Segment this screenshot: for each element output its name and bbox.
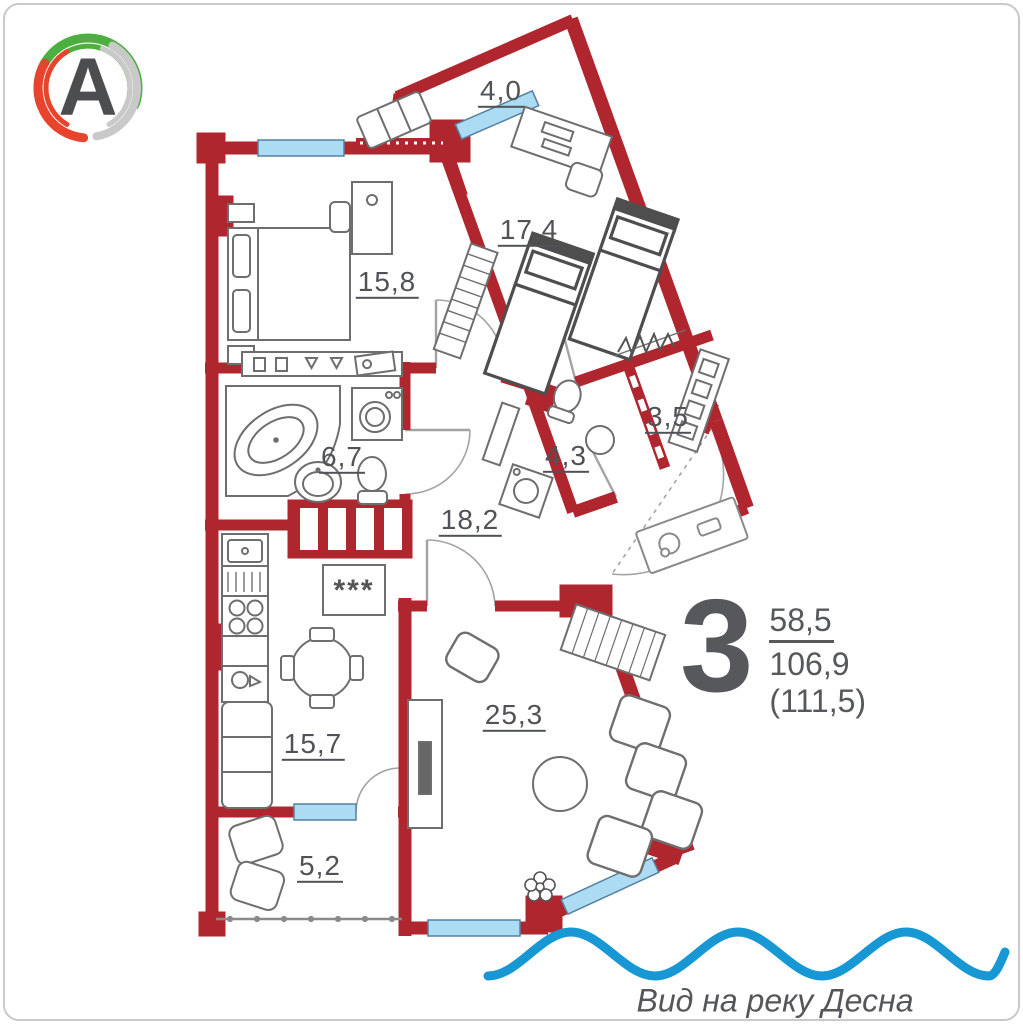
- bathroom-shelf: [242, 351, 402, 376]
- apartment-stats: 3 58,5 106,9 (111,5): [680, 585, 866, 722]
- ottoman: [533, 757, 587, 811]
- plant: [525, 872, 555, 901]
- living-armchair: [443, 629, 502, 685]
- logo-letter: A: [58, 41, 117, 135]
- desk-bedroom2: [511, 107, 612, 177]
- entrance-bench: [635, 497, 748, 574]
- kitchen-sofa: [222, 702, 272, 808]
- double-bed: [228, 228, 350, 340]
- room-label-hallway: 18,2: [439, 505, 502, 537]
- window-bedroom1: [258, 140, 344, 156]
- total-area: 106,9: [769, 647, 866, 682]
- room-label-wardrobe: 3,5: [645, 402, 691, 434]
- shower-panel: [483, 403, 520, 466]
- balcony-armchair: [227, 814, 285, 867]
- room-label-living-room: 25,3: [483, 700, 546, 732]
- river-wave-icon: [488, 932, 1005, 976]
- living-wardrobe: [561, 604, 666, 680]
- washing-machine: [352, 388, 402, 440]
- window-living-1: [428, 920, 520, 936]
- river-view-caption: Вид на реку Десна: [637, 983, 914, 1020]
- window-kitchen: [294, 804, 356, 820]
- rooms-count: 3: [680, 585, 753, 706]
- stove-symbol: ***: [333, 574, 374, 607]
- room-label-balcony-top: 4,0: [478, 76, 524, 108]
- dining-table: [281, 628, 363, 708]
- wc-sink: [586, 426, 614, 454]
- full-area: (111,5): [769, 684, 866, 719]
- room-label-shower-room: 4,3: [543, 441, 589, 473]
- room-label-bathroom: 6,7: [319, 442, 365, 474]
- room-label-balcony-bottom: 5,2: [297, 851, 343, 883]
- kitchen-counter: [222, 534, 268, 702]
- living-area: 58,5: [769, 603, 833, 643]
- floorplan-drawing: ***: [0, 0, 1023, 1024]
- balcony-glazing: [216, 916, 402, 921]
- room-label-bedroom-1: 15,8: [356, 267, 419, 299]
- nightstand: [228, 204, 254, 222]
- room-label-kitchen-living: 15,7: [282, 729, 345, 761]
- floorplan-card: *** A 4,0 17,4 15,8 6,7 4,3 3,5 18,2 15,…: [0, 0, 1023, 1024]
- room-label-bedroom-2: 17,4: [498, 215, 561, 247]
- balcony-armchair: [228, 859, 286, 912]
- tv-stand: [408, 700, 442, 828]
